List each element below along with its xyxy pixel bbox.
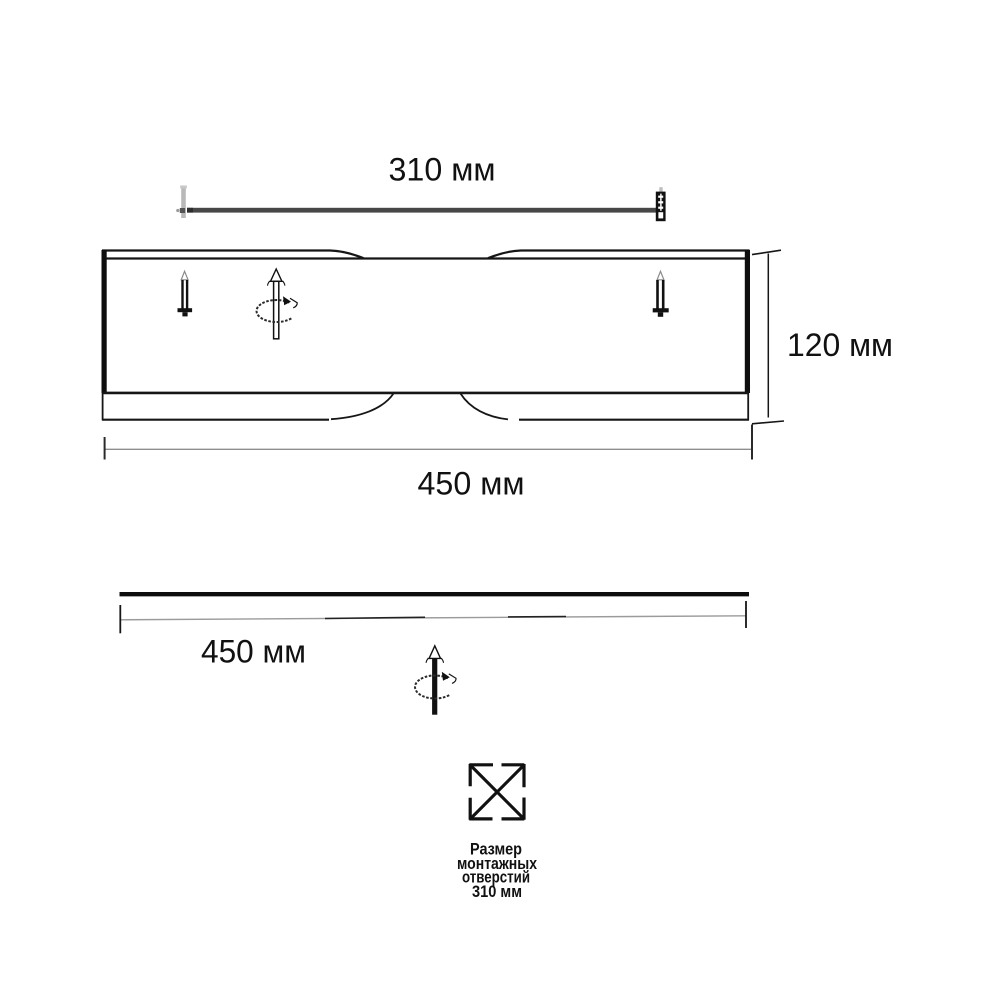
svg-text:120 мм: 120 мм bbox=[787, 327, 893, 363]
svg-text:450 мм: 450 мм bbox=[201, 634, 306, 670]
svg-text:450 мм: 450 мм bbox=[418, 465, 525, 501]
svg-text:310 мм: 310 мм bbox=[472, 882, 522, 901]
svg-text:310 мм: 310 мм bbox=[389, 152, 496, 188]
